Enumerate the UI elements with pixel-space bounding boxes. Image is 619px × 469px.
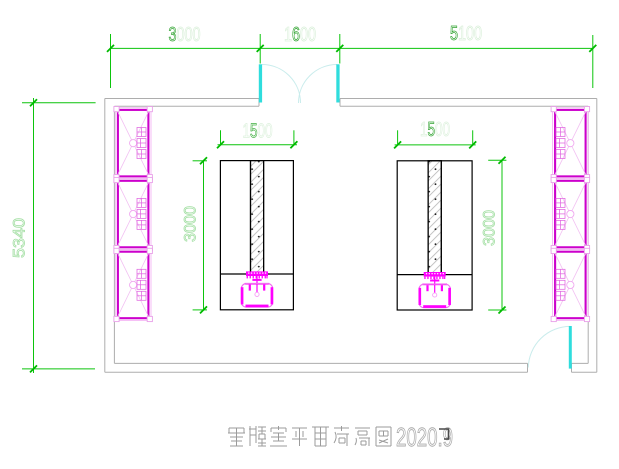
svg-text:5100: 5100 [450,22,482,45]
svg-text:1500: 1500 [243,120,273,143]
svg-text:3000: 3000 [169,23,201,46]
svg-text:5340: 5340 [10,218,29,258]
svg-text:3000: 3000 [181,206,200,242]
svg-text:1500: 1500 [420,118,450,141]
svg-text:1600: 1600 [284,23,316,46]
svg-text:3000: 3000 [480,210,499,246]
